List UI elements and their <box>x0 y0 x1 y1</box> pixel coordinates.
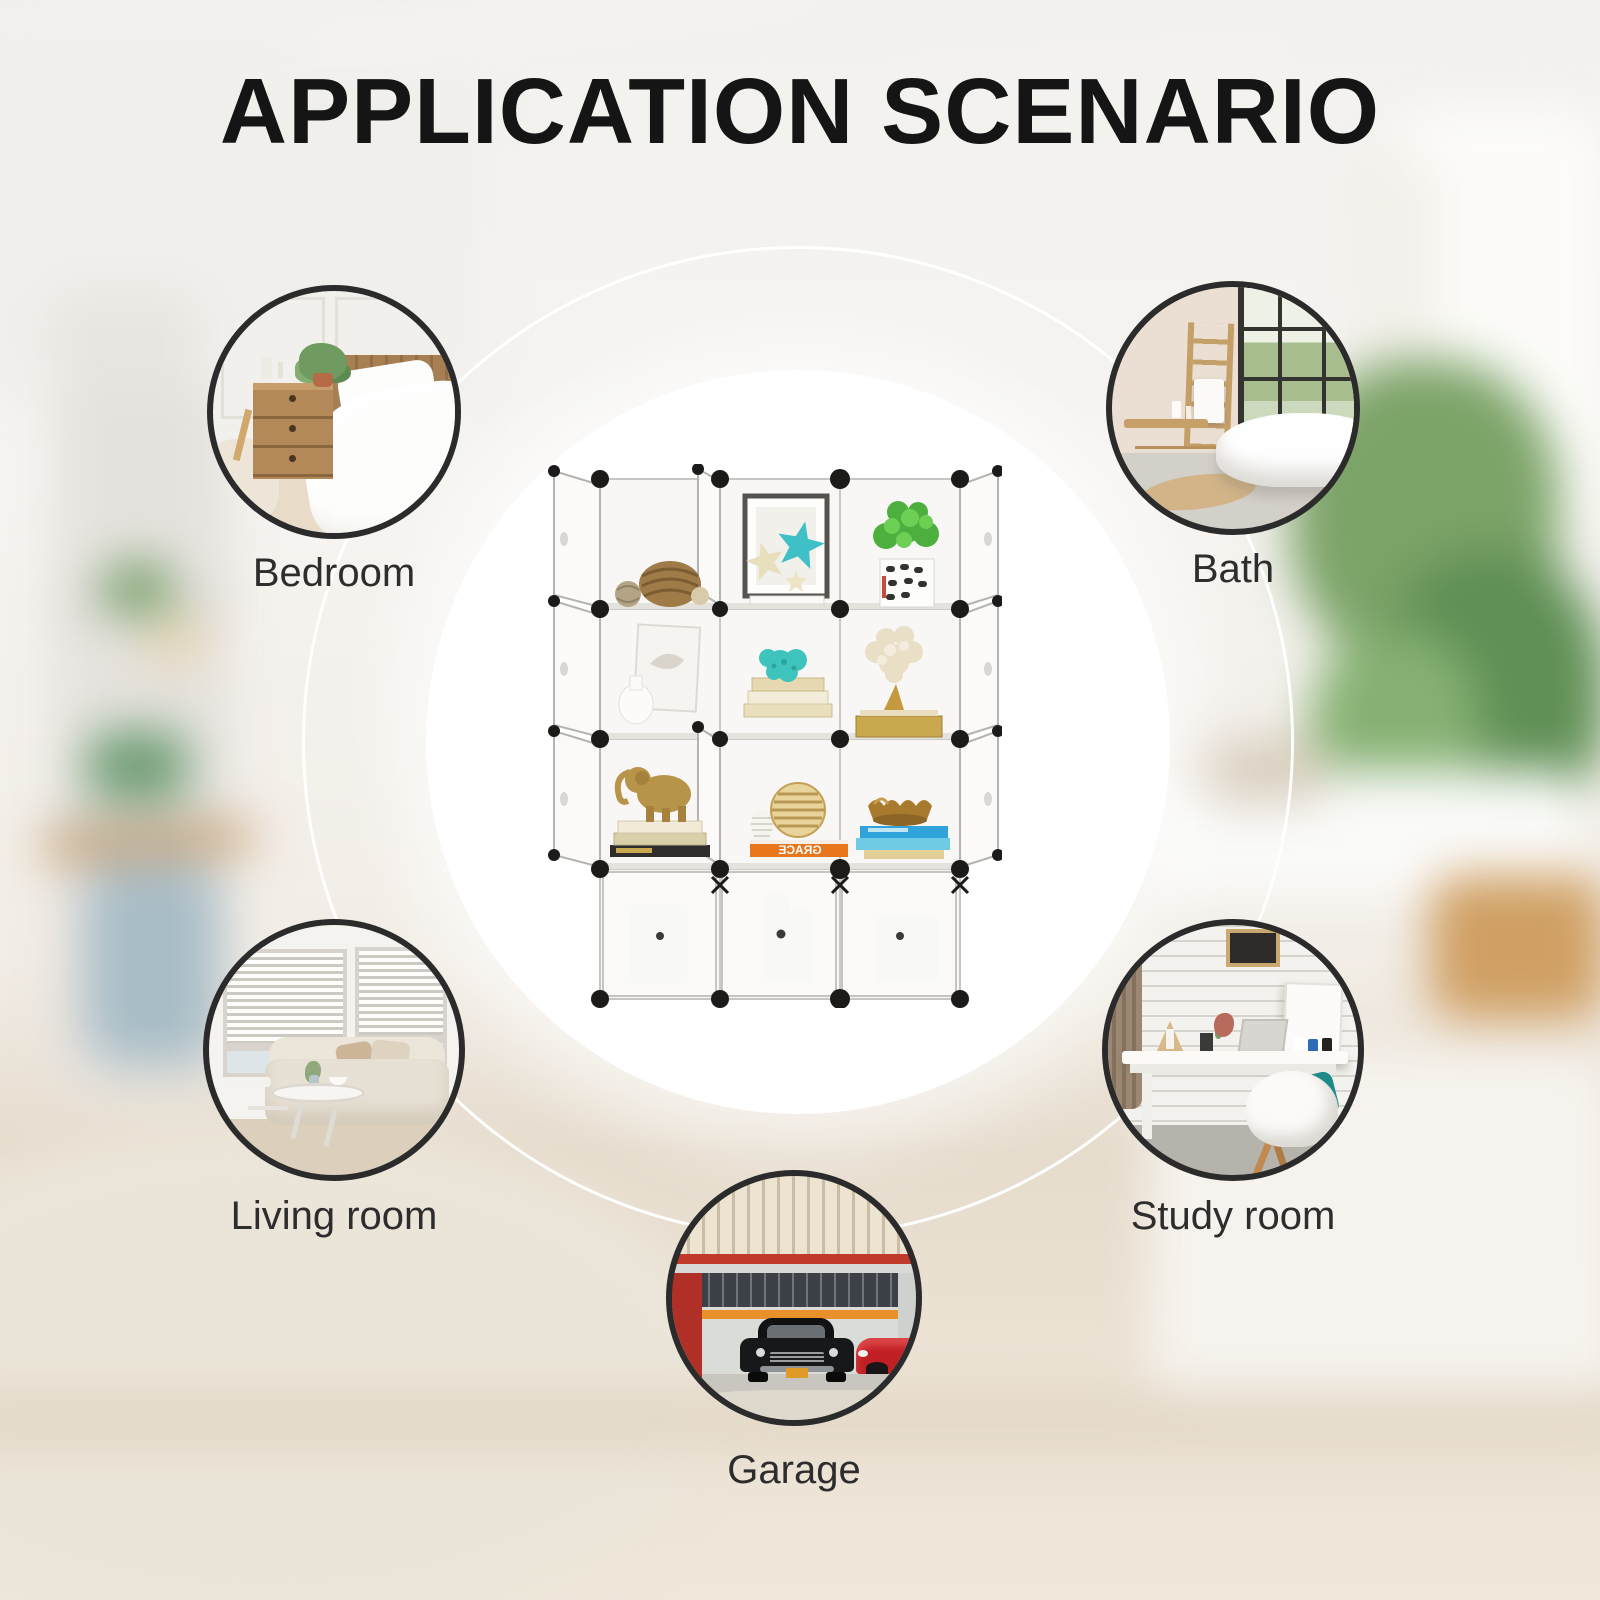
garage-label: Garage <box>666 1448 922 1493</box>
product-image-cube-storage-organizer: GRACE <box>538 464 1002 1008</box>
grille <box>770 1352 824 1363</box>
bedroom-photo <box>207 285 461 539</box>
study-room-photo <box>1102 919 1364 1181</box>
bathtub <box>1216 413 1360 487</box>
pencil-cup <box>1200 1033 1213 1053</box>
window-blinds <box>223 949 347 1047</box>
easel-card <box>1166 1029 1174 1049</box>
garage-photo <box>666 1170 922 1426</box>
corrugated-wall <box>672 1176 922 1254</box>
drawer-knobs <box>289 395 296 402</box>
towel <box>1194 379 1224 423</box>
green-box <box>85 730 190 802</box>
plant-pot <box>313 373 333 387</box>
application-scenario-banner: GRACE <box>0 0 1600 1600</box>
potted-plant <box>100 560 175 618</box>
side-table <box>225 1077 271 1087</box>
bottles <box>1172 401 1181 418</box>
paint-jars <box>1294 1037 1304 1051</box>
basket <box>145 615 207 667</box>
desk-legs <box>1142 1073 1152 1139</box>
desk-top <box>1122 1051 1348 1064</box>
wood-chair <box>1430 875 1600 1020</box>
headlights <box>756 1348 765 1357</box>
headlight <box>858 1350 868 1357</box>
canvas <box>1283 982 1344 1058</box>
classic-black-car <box>740 1318 854 1382</box>
red-side-wall <box>672 1273 702 1385</box>
license-plate <box>786 1368 808 1378</box>
blanket <box>85 860 220 1065</box>
flowers <box>1214 1013 1234 1037</box>
garage-ceiling <box>680 1273 920 1307</box>
bedroom-label: Bedroom <box>207 551 461 596</box>
window-blinds <box>355 947 447 1039</box>
bath-label: Bath <box>1106 547 1360 592</box>
blackboard <box>1226 929 1280 967</box>
book-spine-text: GRACE <box>778 843 821 857</box>
red-sports-car <box>856 1328 922 1380</box>
wheel-arch <box>866 1362 888 1374</box>
shell-chair <box>1246 1071 1338 1147</box>
wood-bench <box>1124 419 1208 428</box>
living-room-photo <box>203 919 465 1181</box>
reed-diffuser <box>261 357 272 379</box>
study-room-label: Study room <box>1102 1194 1364 1239</box>
file-organizer <box>1238 1019 1289 1053</box>
curtain <box>1102 921 1142 1109</box>
wheels <box>748 1372 768 1382</box>
living-room-label: Living room <box>203 1194 465 1239</box>
page-title: APPLICATION SCENARIO <box>0 58 1600 165</box>
coffee-table <box>271 1083 365 1103</box>
bath-photo <box>1106 281 1360 535</box>
